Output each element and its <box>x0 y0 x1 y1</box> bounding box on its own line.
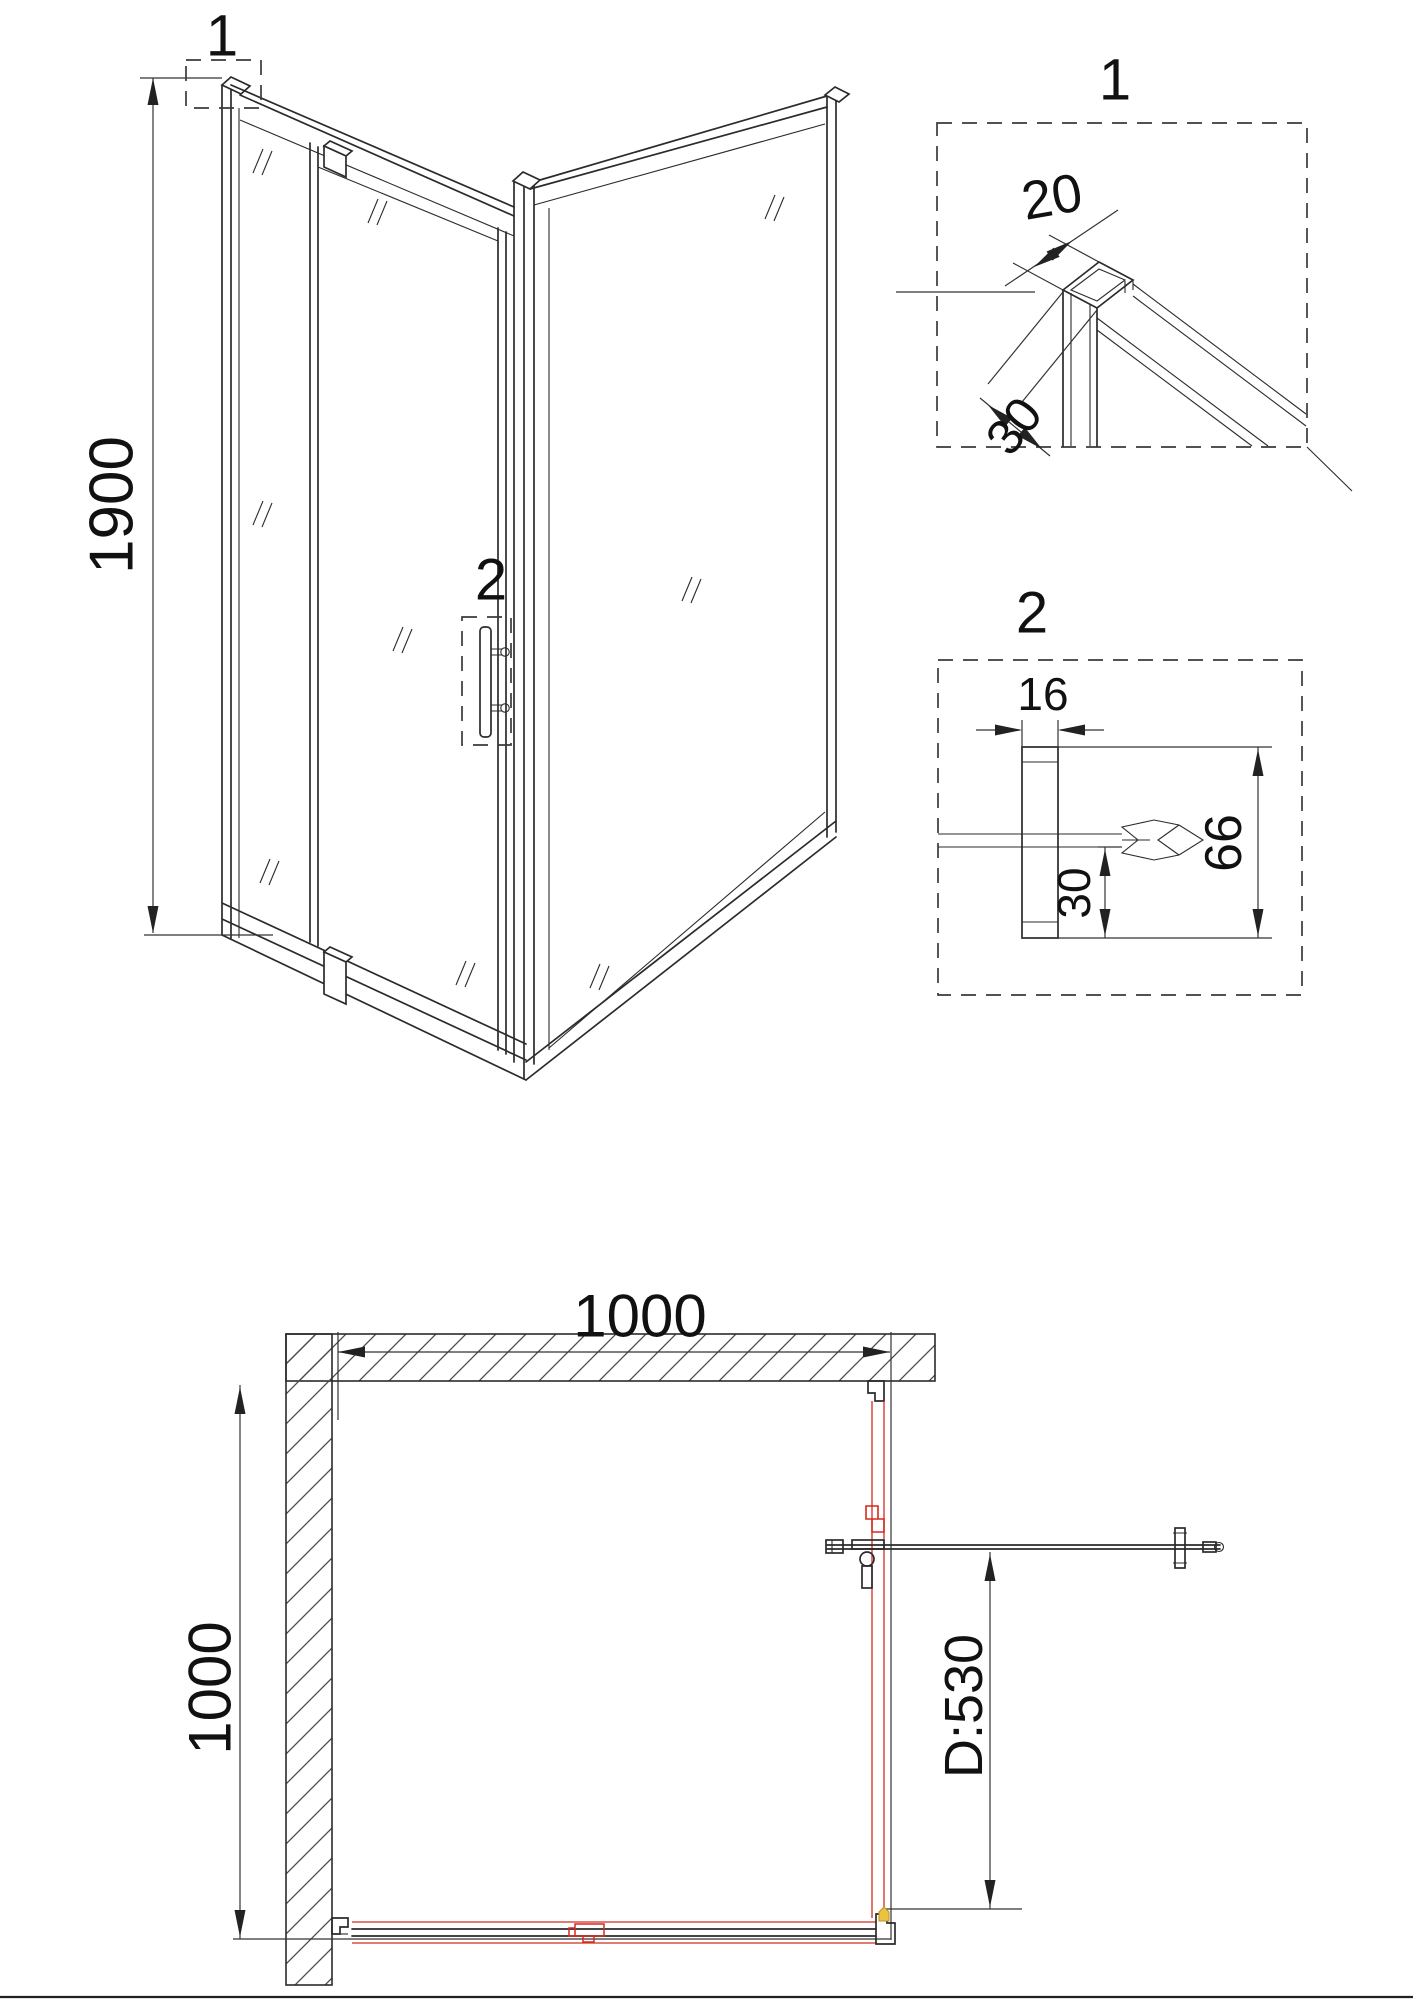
profile-depth-label: 30 <box>975 387 1053 465</box>
detail-1-title: 1 <box>1099 48 1131 113</box>
profile-width-label: 20 <box>1017 162 1087 232</box>
plan-depth-label: 1000 <box>177 1621 244 1754</box>
wall-hatch-left <box>286 1334 332 1985</box>
profile-depth-dimension: 30 <box>975 292 1097 465</box>
drawing-page: 1900 1 2 1 <box>0 0 1413 2000</box>
pivot-hinge <box>852 1540 884 1588</box>
detail-2-glass <box>938 834 1122 847</box>
technical-drawing: 1900 1 2 1 <box>0 0 1413 2000</box>
callout-2-label: 2 <box>475 548 507 613</box>
door-width-dimension: D:530 <box>885 1552 1022 1909</box>
detail-1-view: 1 20 <box>896 48 1352 492</box>
magnet-profile-red <box>866 1506 884 1532</box>
open-door <box>826 1528 1224 1568</box>
corner-post <box>513 172 540 1079</box>
iso-view: 1900 1 2 <box>78 4 850 1081</box>
glass-reflection-marks <box>253 149 784 990</box>
detail-1-box <box>937 123 1307 447</box>
top-wall-profile <box>868 1381 884 1401</box>
plan-width-label: 1000 <box>573 1283 706 1350</box>
side-panel <box>530 87 849 1050</box>
left-frame-profile <box>332 1918 348 1934</box>
height-dimension: 1900 <box>78 78 274 935</box>
callout-2: 2 <box>462 548 511 746</box>
callout-1-label: 1 <box>206 4 238 69</box>
inset-dimension: 30 <box>1048 847 1122 938</box>
left-wall-profile <box>222 77 250 938</box>
door-hinge-cap <box>826 1540 843 1553</box>
detail-2-title: 2 <box>1016 581 1048 646</box>
height-dimension-label: 1900 <box>78 436 147 574</box>
door-width-label: D:530 <box>934 1634 994 1778</box>
door-handle-plan <box>1173 1528 1187 1568</box>
plan-depth-dimension: 1000 <box>177 1385 892 1939</box>
overall-dimension-label: 66 <box>1195 814 1253 872</box>
side-panel-top-cap <box>825 87 849 102</box>
corner-post-cap <box>513 172 540 189</box>
fixed-panel-divider <box>310 143 318 946</box>
plan-view: 1000 1000 <box>177 1283 1224 1986</box>
wall-profile-width-label: 16 <box>1017 668 1068 720</box>
side-panel-plan <box>866 1381 884 1918</box>
door-handle <box>480 627 509 737</box>
bottom-rail <box>222 812 836 1080</box>
corner-seal <box>1122 820 1203 860</box>
wall-profile-width-dimension: 16 <box>976 668 1104 750</box>
door-end-cap <box>1203 1542 1224 1552</box>
detail-1-glass <box>1097 284 1306 446</box>
inset-dimension-label: 30 <box>1048 867 1100 918</box>
detail-2-view: 2 16 30 <box>938 581 1302 996</box>
corner-profile-tube <box>1063 262 1133 446</box>
